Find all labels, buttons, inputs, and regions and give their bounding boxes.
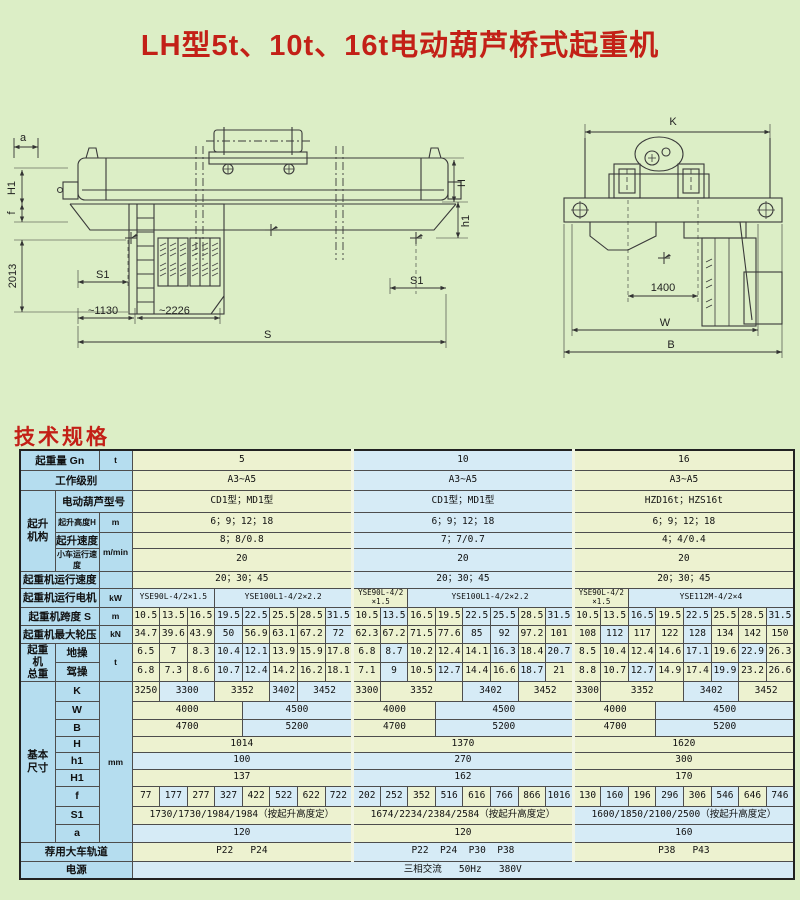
spec-value-cell: 6；9；12；18 bbox=[573, 512, 794, 532]
spec-value-cell: 3452 bbox=[297, 681, 352, 701]
row-label: 起升高度H bbox=[55, 512, 99, 532]
spec-value-cell: 522 bbox=[270, 786, 298, 806]
dim-label-1130: ~1130 bbox=[88, 305, 118, 317]
catalog-page: LH型5t、10t、16t电动葫芦桥式起重机 bbox=[0, 0, 800, 900]
spec-value-cell: 28.5 bbox=[739, 607, 767, 625]
spec-value-cell: 13.5 bbox=[160, 607, 188, 625]
spec-value-cell: 4500 bbox=[435, 701, 573, 719]
row-label: 地操 bbox=[55, 643, 99, 662]
unit-cell: kW bbox=[99, 588, 132, 607]
spec-value-cell: YSE100L1-4/2×2.2 bbox=[408, 588, 573, 607]
spec-value-cell: 16.2 bbox=[297, 662, 325, 681]
spec-value-cell: 8.8 bbox=[573, 662, 601, 681]
spec-section-heading: 技术规格 bbox=[14, 421, 110, 451]
spec-value-cell: 202 bbox=[353, 786, 381, 806]
dim-label-k: K bbox=[669, 116, 677, 128]
spec-value-cell: 14.2 bbox=[270, 662, 298, 681]
row-label: 小车运行速度 bbox=[55, 548, 99, 571]
spec-value-cell: 92 bbox=[491, 625, 519, 643]
row-label: W bbox=[55, 701, 99, 719]
spec-value-cell: 137 bbox=[132, 769, 353, 786]
spec-value-cell: 26.6 bbox=[766, 662, 794, 681]
spec-value-cell: 1674/2234/2384/2584（按起升高度定） bbox=[353, 806, 574, 824]
spec-value-cell: 1370 bbox=[353, 736, 574, 752]
spec-value-cell: 722 bbox=[325, 786, 353, 806]
dim-label-a: a bbox=[20, 132, 27, 144]
spec-value-cell: 4700 bbox=[353, 719, 436, 736]
spec-value-cell: 277 bbox=[187, 786, 215, 806]
spec-value-cell: 16.5 bbox=[187, 607, 215, 625]
spec-value-cell: P22 P24 P30 P38 bbox=[353, 842, 574, 861]
spec-value-cell: 3352 bbox=[215, 681, 270, 701]
spec-value-cell: 3300 bbox=[160, 681, 215, 701]
dim-label-f: f bbox=[6, 211, 18, 215]
dim-label-w: W bbox=[660, 317, 671, 329]
spec-value-cell: A3~A5 bbox=[573, 470, 794, 490]
spec-value-cell: 22.5 bbox=[684, 607, 712, 625]
spec-value-cell: 4700 bbox=[573, 719, 656, 736]
rail-center-mark-center bbox=[265, 224, 278, 236]
spec-value-cell: 22.5 bbox=[463, 607, 491, 625]
row-label: H1 bbox=[55, 769, 99, 786]
spec-value-cell: 122 bbox=[656, 625, 684, 643]
spec-value-cell: 422 bbox=[242, 786, 270, 806]
spec-value-cell: 20 bbox=[132, 548, 353, 571]
bridge-girder bbox=[58, 148, 462, 230]
row-label: 工作级别 bbox=[20, 470, 132, 490]
spec-value-cell: 646 bbox=[739, 786, 767, 806]
spec-value-cell: P22 P24 bbox=[132, 842, 353, 861]
spec-value-cell: 12.1 bbox=[242, 643, 270, 662]
row-label: B bbox=[55, 719, 99, 736]
spec-value-cell: 1730/1730/1984/1984（按起升高度定） bbox=[132, 806, 353, 824]
spec-value-cell: 72 bbox=[325, 625, 353, 643]
row-label: f bbox=[55, 786, 99, 806]
spec-value-cell: 1016 bbox=[546, 786, 574, 806]
spec-value-cell: 12.4 bbox=[242, 662, 270, 681]
spec-value-cell: 4700 bbox=[132, 719, 242, 736]
spec-value-cell: 20 bbox=[353, 548, 574, 571]
spec-value-cell: 23.2 bbox=[739, 662, 767, 681]
spec-value-cell: 77.6 bbox=[435, 625, 463, 643]
spec-value-cell: 327 bbox=[215, 786, 243, 806]
spec-value-cell: 6.8 bbox=[353, 643, 381, 662]
spec-value-cell: 26.3 bbox=[766, 643, 794, 662]
unit-cell: m bbox=[99, 512, 132, 532]
spec-value-cell: 19.5 bbox=[656, 607, 684, 625]
unit-cell: t bbox=[99, 450, 132, 470]
row-label: h1 bbox=[55, 752, 99, 769]
spec-value-cell: 352 bbox=[408, 786, 436, 806]
row-label: 荐用大车轨道 bbox=[20, 842, 132, 861]
spec-value-cell: 三相交流 50Hz 380V bbox=[132, 861, 794, 879]
spec-value-cell: YSE100L1-4/2×2.2 bbox=[215, 588, 353, 607]
spec-value-cell: 1014 bbox=[132, 736, 353, 752]
spec-value-cell: 67.2 bbox=[380, 625, 408, 643]
unit-cell: m/min bbox=[99, 532, 132, 571]
spec-value-cell: 4000 bbox=[573, 701, 656, 719]
spec-value-cell: 8.5 bbox=[573, 643, 601, 662]
spec-value-cell: 1600/1850/2100/2500（按起升高度定） bbox=[573, 806, 794, 824]
spec-value-cell: 17.8 bbox=[325, 643, 353, 662]
dim-label-1400: 1400 bbox=[651, 282, 675, 294]
group-label: 起升 机构 bbox=[20, 490, 55, 571]
spec-value-cell: 3452 bbox=[739, 681, 794, 701]
spec-value-cell: 20；30；45 bbox=[353, 571, 574, 588]
spec-value-cell: 63.1 bbox=[270, 625, 298, 643]
row-label: 起重机运行电机 bbox=[20, 588, 99, 607]
spec-value-cell: 306 bbox=[684, 786, 712, 806]
spec-value-cell: 6；9；12；18 bbox=[353, 512, 574, 532]
trolley-hoist bbox=[209, 127, 307, 174]
spec-value-cell: 8.7 bbox=[380, 643, 408, 662]
spec-value-cell: 77 bbox=[132, 786, 160, 806]
spec-value-cell: 10 bbox=[353, 450, 574, 470]
spec-value-cell: 28.5 bbox=[297, 607, 325, 625]
spec-value-cell: 4000 bbox=[132, 701, 242, 719]
spec-value-cell: 616 bbox=[463, 786, 491, 806]
spec-value-cell: 142 bbox=[739, 625, 767, 643]
spec-value-cell: 18.1 bbox=[325, 662, 353, 681]
spec-value-cell: A3~A5 bbox=[132, 470, 353, 490]
spec-value-cell: 270 bbox=[353, 752, 574, 769]
dim-label-h1-left: H1 bbox=[6, 181, 18, 195]
spec-value-cell: 25.5 bbox=[491, 607, 519, 625]
spec-value-cell: 10.2 bbox=[408, 643, 436, 662]
spec-value-cell: 3352 bbox=[601, 681, 684, 701]
spec-value-cell: 85 bbox=[463, 625, 491, 643]
spec-value-cell: 7.3 bbox=[160, 662, 188, 681]
dimension-lines bbox=[14, 138, 468, 348]
page-title: LH型5t、10t、16t电动葫芦桥式起重机 bbox=[0, 22, 800, 64]
spec-value-cell: 4500 bbox=[656, 701, 794, 719]
spec-value-cell: 15.9 bbox=[297, 643, 325, 662]
spec-value-cell: 16 bbox=[573, 450, 794, 470]
row-label: K bbox=[55, 681, 99, 701]
spec-value-cell: 3300 bbox=[353, 681, 381, 701]
row-label: 起升速度 bbox=[55, 532, 99, 548]
spec-value-cell: 112 bbox=[601, 625, 629, 643]
spec-value-cell: 7 bbox=[160, 643, 188, 662]
spec-value-cell: 128 bbox=[684, 625, 712, 643]
row-label: 驾操 bbox=[55, 662, 99, 681]
spec-value-cell: 16.3 bbox=[491, 643, 519, 662]
spec-value-cell: 12.4 bbox=[628, 643, 656, 662]
spec-value-cell: 67.2 bbox=[297, 625, 325, 643]
spec-value-cell: CD1型；MD1型 bbox=[132, 490, 353, 512]
spec-value-cell: 160 bbox=[601, 786, 629, 806]
spec-value-cell: 3402 bbox=[684, 681, 739, 701]
spec-value-cell: 31.5 bbox=[325, 607, 353, 625]
spec-value-cell: 162 bbox=[353, 769, 574, 786]
spec-value-cell: 120 bbox=[353, 824, 574, 842]
spec-value-cell: 160 bbox=[573, 824, 794, 842]
row-label: 起重量 Gn bbox=[20, 450, 99, 470]
spec-value-cell: 16.5 bbox=[628, 607, 656, 625]
spec-value-cell: 14.1 bbox=[463, 643, 491, 662]
spec-value-cell: 6.8 bbox=[132, 662, 160, 681]
technical-drawing-side-view: a H1 f 2013 S1 ~1130 ~2226 S H h1 S1 bbox=[6, 110, 551, 378]
spec-value-cell: 101 bbox=[546, 625, 574, 643]
spec-value-cell: 3250 bbox=[132, 681, 160, 701]
spec-value-cell: 196 bbox=[628, 786, 656, 806]
spec-value-cell: 71.5 bbox=[408, 625, 436, 643]
spec-value-cell: 13.5 bbox=[380, 607, 408, 625]
spec-value-cell: 1620 bbox=[573, 736, 794, 752]
spec-value-cell: 62.3 bbox=[353, 625, 381, 643]
spec-value-cell: 28.5 bbox=[518, 607, 546, 625]
spec-value-cell: 100 bbox=[132, 752, 353, 769]
row-label: 电源 bbox=[20, 861, 132, 879]
spec-value-cell: 130 bbox=[573, 786, 601, 806]
end-view-frame bbox=[564, 137, 782, 326]
spec-value-cell: 18.7 bbox=[518, 662, 546, 681]
spec-value-cell: 20；30；45 bbox=[132, 571, 353, 588]
spec-value-cell: 14.6 bbox=[656, 643, 684, 662]
spec-value-cell: 17.1 bbox=[684, 643, 712, 662]
spec-value-cell: 10.5 bbox=[132, 607, 160, 625]
spec-value-cell: 20；30；45 bbox=[573, 571, 794, 588]
spec-value-cell: 252 bbox=[380, 786, 408, 806]
spec-value-cell: CD1型；MD1型 bbox=[353, 490, 574, 512]
spec-value-cell: 21 bbox=[546, 662, 574, 681]
spec-value-cell: 516 bbox=[435, 786, 463, 806]
spec-value-cell: YSE90L-4/2 ×1.5 bbox=[353, 588, 408, 607]
spec-value-cell: 117 bbox=[628, 625, 656, 643]
spec-value-cell: 56.9 bbox=[242, 625, 270, 643]
dim-label-s1-left: S1 bbox=[96, 269, 109, 281]
spec-value-cell: 8.3 bbox=[187, 643, 215, 662]
spec-value-cell: 10.5 bbox=[353, 607, 381, 625]
spec-value-cell: 3402 bbox=[270, 681, 298, 701]
spec-value-cell: 866 bbox=[518, 786, 546, 806]
spec-value-cell: 22.9 bbox=[739, 643, 767, 662]
spec-value-cell: 5200 bbox=[242, 719, 352, 736]
row-label: 电动葫芦型号 bbox=[55, 490, 132, 512]
spec-value-cell: 39.6 bbox=[160, 625, 188, 643]
spec-value-cell: 25.5 bbox=[711, 607, 739, 625]
spec-value-cell: 150 bbox=[766, 625, 794, 643]
spec-value-cell: 10.5 bbox=[408, 662, 436, 681]
dim-label-h1-right: h1 bbox=[460, 215, 472, 227]
dim-label-b: B bbox=[667, 339, 674, 351]
spec-value-cell: 19.5 bbox=[215, 607, 243, 625]
spec-value-cell: 12.7 bbox=[628, 662, 656, 681]
row-label: 起重机跨度 S bbox=[20, 607, 99, 625]
spec-value-cell: 7.1 bbox=[353, 662, 381, 681]
row-label: 起重机运行速度 bbox=[20, 571, 99, 588]
girder-center-mark bbox=[658, 252, 671, 264]
row-label: S1 bbox=[55, 806, 99, 824]
spec-value-cell: 108 bbox=[573, 625, 601, 643]
spec-value-cell: 34.7 bbox=[132, 625, 160, 643]
spec-value-cell: 622 bbox=[297, 786, 325, 806]
spec-value-cell: 16.5 bbox=[408, 607, 436, 625]
spec-value-cell: 746 bbox=[766, 786, 794, 806]
group-label: 基本 尺寸 bbox=[20, 681, 55, 842]
spec-value-cell: 13.5 bbox=[601, 607, 629, 625]
table-body: 起重量 Gnt51016工作级别A3~A5A3~A5A3~A5起升 机构电动葫芦… bbox=[20, 450, 794, 879]
spec-value-cell: 22.5 bbox=[242, 607, 270, 625]
unit-cell: m bbox=[99, 607, 132, 625]
row-label: 起重机最大轮压 bbox=[20, 625, 99, 643]
spec-value-cell: 43.9 bbox=[187, 625, 215, 643]
spec-value-cell: 4500 bbox=[242, 701, 352, 719]
dim-label-2226: ~2226 bbox=[159, 305, 190, 317]
spec-value-cell: YSE90L-4/2 ×1.5 bbox=[573, 588, 628, 607]
spec-value-cell: 296 bbox=[656, 786, 684, 806]
spec-value-cell: 14.4 bbox=[463, 662, 491, 681]
spec-value-cell: 12.7 bbox=[435, 662, 463, 681]
spec-value-cell: A3~A5 bbox=[353, 470, 574, 490]
spec-value-cell: 10.7 bbox=[215, 662, 243, 681]
dim-label-h-right: H bbox=[456, 179, 468, 187]
spec-value-cell: 10.4 bbox=[601, 643, 629, 662]
spec-value-cell: 300 bbox=[573, 752, 794, 769]
spec-value-cell: 97.2 bbox=[518, 625, 546, 643]
spec-value-cell: 3300 bbox=[573, 681, 601, 701]
spec-value-cell: 31.5 bbox=[546, 607, 574, 625]
spec-value-cell: 16.6 bbox=[491, 662, 519, 681]
unit-cell: kN bbox=[99, 625, 132, 643]
spec-value-cell: 170 bbox=[573, 769, 794, 786]
spec-value-cell: 134 bbox=[711, 625, 739, 643]
unit-cell: t bbox=[99, 643, 132, 681]
spec-value-cell: 17.4 bbox=[684, 662, 712, 681]
spec-value-cell: 3352 bbox=[380, 681, 463, 701]
spec-value-cell: 9 bbox=[380, 662, 408, 681]
spec-value-cell: 20 bbox=[573, 548, 794, 571]
spec-value-cell: 120 bbox=[132, 824, 353, 842]
dim-label-2013: 2013 bbox=[7, 264, 19, 288]
technical-drawing-end-view: K 1400 W B bbox=[552, 112, 797, 364]
spec-value-cell: 19.6 bbox=[711, 643, 739, 662]
spec-value-cell: YSE90L-4/2×1.5 bbox=[132, 588, 215, 607]
rail-center-mark-right bbox=[410, 232, 423, 244]
group-label: 起重 机 总重 bbox=[20, 643, 55, 681]
spec-value-cell: 6.5 bbox=[132, 643, 160, 662]
spec-value-cell: 13.9 bbox=[270, 643, 298, 662]
cab-and-ladder bbox=[129, 204, 224, 314]
spec-value-cell: 19.5 bbox=[435, 607, 463, 625]
spec-value-cell: 10.7 bbox=[601, 662, 629, 681]
spec-value-cell: YSE112M-4/2×4 bbox=[628, 588, 794, 607]
spec-value-cell: 766 bbox=[491, 786, 519, 806]
spec-value-cell: P38 P43 bbox=[573, 842, 794, 861]
spec-value-cell: 5 bbox=[132, 450, 353, 470]
spec-value-cell: 3402 bbox=[463, 681, 518, 701]
spec-value-cell: 50 bbox=[215, 625, 243, 643]
spec-value-cell: 19.9 bbox=[711, 662, 739, 681]
spec-value-cell: HZD16t；HZS16t bbox=[573, 490, 794, 512]
spec-value-cell: 4；4/0.4 bbox=[573, 532, 794, 548]
unit-cell bbox=[99, 571, 132, 588]
unit-cell: mm bbox=[99, 681, 132, 842]
spec-value-cell: 546 bbox=[711, 786, 739, 806]
spec-value-cell: 7；7/0.7 bbox=[353, 532, 574, 548]
spec-value-cell: 10.4 bbox=[215, 643, 243, 662]
dim-label-s: S bbox=[264, 329, 271, 341]
spec-value-cell: 6；9；12；18 bbox=[132, 512, 353, 532]
rail-center-mark-left bbox=[125, 232, 138, 244]
spec-value-cell: 3452 bbox=[518, 681, 573, 701]
spec-value-cell: 31.5 bbox=[766, 607, 794, 625]
spec-value-cell: 177 bbox=[160, 786, 188, 806]
spec-value-cell: 4000 bbox=[353, 701, 436, 719]
row-label: H bbox=[55, 736, 99, 752]
spec-value-cell: 8；8/0.8 bbox=[132, 532, 353, 548]
spec-value-cell: 25.5 bbox=[270, 607, 298, 625]
spec-value-cell: 18.4 bbox=[518, 643, 546, 662]
spec-value-cell: 5200 bbox=[656, 719, 794, 736]
spec-value-cell: 8.6 bbox=[187, 662, 215, 681]
specifications-table: 起重量 Gnt51016工作级别A3~A5A3~A5A3~A5起升 机构电动葫芦… bbox=[19, 449, 795, 880]
spec-value-cell: 10.5 bbox=[573, 607, 601, 625]
row-label: a bbox=[55, 824, 99, 842]
spec-value-cell: 5200 bbox=[435, 719, 573, 736]
spec-value-cell: 14.9 bbox=[656, 662, 684, 681]
dim-label-s1-right: S1 bbox=[410, 275, 423, 287]
spec-value-cell: 20.7 bbox=[546, 643, 574, 662]
spec-value-cell: 12.4 bbox=[435, 643, 463, 662]
